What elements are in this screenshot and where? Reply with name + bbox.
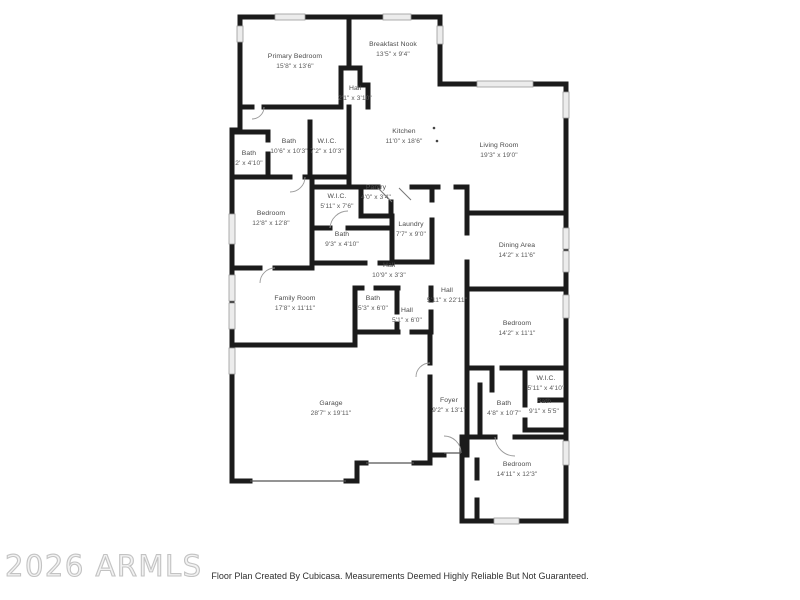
room-dims: 9'2" x 13'1"	[432, 406, 466, 416]
fixture-dots	[433, 127, 439, 143]
window	[477, 81, 533, 87]
room-name: Garage	[311, 399, 352, 409]
room-dims: 13'5" x 9'4"	[369, 50, 417, 60]
room-name: Breakfast Nook	[369, 40, 417, 50]
room-dims: 28'7" x 19'11"	[311, 409, 352, 419]
room-label-bath: Bath5'3" x 6'0"	[358, 294, 388, 314]
room-label-w-i-c-: W.I.C.5'11" x 7'6"	[320, 192, 353, 212]
room-label-kitchen: Kitchen11'0" x 18'6"	[386, 127, 423, 147]
room-dims: 5'11" x 4'10"	[528, 384, 565, 394]
room-dims: 19'3" x 19'0"	[480, 151, 519, 161]
room-dims: 7'7" x 9'0"	[396, 230, 426, 240]
room-name: Bath	[235, 149, 263, 159]
room-label-living-room: Living Room19'3" x 19'0"	[480, 141, 519, 161]
room-label-dining-area: Dining Area14'2" x 11'6"	[499, 241, 536, 261]
room-dims: 4'8" x 10'7"	[487, 409, 521, 419]
room-dims: 5'1" x 6'0"	[392, 316, 422, 326]
window	[229, 275, 235, 301]
footer-disclaimer: Floor Plan Created By Cubicasa. Measurem…	[0, 571, 800, 581]
room-name: Hall	[427, 286, 467, 296]
room-dims: 5'11" x 22'11"	[427, 296, 467, 306]
window	[563, 228, 569, 249]
room-label-foyer: Foyer9'2" x 13'1"	[432, 396, 466, 416]
room-name: Living Room	[480, 141, 519, 151]
room-dims: 4'0" x 3'4"	[361, 193, 391, 203]
room-name: W.I.C.	[310, 137, 344, 147]
room-name: Primary Bedroom	[268, 52, 322, 62]
window	[563, 441, 569, 465]
room-dims: 12'8" x 12'8"	[252, 219, 289, 229]
room-name: Kitchen	[386, 127, 423, 137]
room-name: Bath	[487, 399, 521, 409]
window	[275, 14, 305, 20]
room-label-bath: Bath9'3" x 4'10"	[325, 230, 359, 250]
window	[229, 214, 235, 244]
room-label-bedroom: Bedroom14'2" x 11'1"	[499, 319, 536, 339]
door-arcs	[252, 107, 515, 456]
room-label-bath: Bath4'8" x 10'7"	[487, 399, 521, 419]
room-label-hall: Hall2'1" x 3'10"	[338, 84, 372, 104]
room-dims: 9'3" x 4'10"	[325, 240, 359, 250]
room-dims: 11'0" x 18'6"	[386, 137, 423, 147]
room-dims: 10'6" x 10'3"	[270, 147, 307, 157]
window	[237, 26, 243, 42]
room-name: Bath	[270, 137, 307, 147]
room-label-family-room: Family Room17'8" x 11'11"	[274, 294, 315, 314]
room-dims: 9'1" x 5'5"	[529, 407, 559, 417]
window	[563, 295, 569, 318]
room-label-laundry: Laundry7'7" x 9'0"	[396, 220, 426, 240]
window	[563, 251, 569, 272]
room-label-bath: Bath9'1" x 5'5"	[529, 397, 559, 417]
room-name: Laundry	[396, 220, 426, 230]
room-name: Hall	[372, 261, 406, 271]
room-name: Bath	[325, 230, 359, 240]
room-label-w-i-c-: W.I.C.5'11" x 4'10"	[528, 374, 565, 394]
window	[437, 26, 443, 44]
room-name: Bath	[358, 294, 388, 304]
room-dims: 5'11" x 7'6"	[320, 202, 353, 212]
room-dims: 2'1" x 3'10"	[338, 94, 372, 104]
room-name: Bedroom	[497, 460, 538, 470]
room-label-hall: Hall5'11" x 22'11"	[427, 286, 467, 306]
window	[494, 518, 519, 524]
window	[383, 14, 411, 20]
window	[229, 348, 235, 374]
room-label-primary-bedroom: Primary Bedroom15'8" x 13'6"	[268, 52, 322, 72]
room-label-bath: Bath2' x 4'10"	[235, 149, 263, 169]
window	[563, 92, 569, 118]
room-label-bath: Bath10'6" x 10'3"	[270, 137, 307, 157]
room-label-breakfast-nook: Breakfast Nook13'5" x 9'4"	[369, 40, 417, 60]
room-name: W.I.C.	[320, 192, 353, 202]
room-dims: 14'2" x 11'6"	[499, 251, 536, 261]
room-dims: 5'3" x 6'0"	[358, 304, 388, 314]
room-name: Hall	[338, 84, 372, 94]
room-name: Dining Area	[499, 241, 536, 251]
room-dims: 2' x 4'10"	[235, 159, 263, 169]
room-label-bedroom: Bedroom14'11" x 12'3"	[497, 460, 538, 480]
room-label-hall: Hall10'9" x 3'3"	[372, 261, 406, 281]
floor-plan-page: Primary Bedroom15'8" x 13'6"Breakfast No…	[0, 0, 800, 600]
room-name: Family Room	[274, 294, 315, 304]
room-label-w-i-c-: W.I.C.7'2" x 10'3"	[310, 137, 344, 157]
room-label-garage: Garage28'7" x 19'11"	[311, 399, 352, 419]
floor-plan-drawing	[0, 0, 800, 600]
room-dims: 14'2" x 11'1"	[499, 329, 536, 339]
room-label-bedroom: Bedroom12'8" x 12'8"	[252, 209, 289, 229]
room-name: Bath	[529, 397, 559, 407]
room-dims: 7'2" x 10'3"	[310, 147, 344, 157]
room-dims: 17'8" x 11'11"	[274, 304, 315, 314]
room-name: Foyer	[432, 396, 466, 406]
room-label-pantry: Pantry4'0" x 3'4"	[361, 183, 391, 203]
room-label-hall: Hall5'1" x 6'0"	[392, 306, 422, 326]
room-name: Bedroom	[499, 319, 536, 329]
room-name: Pantry	[361, 183, 391, 193]
room-name: W.I.C.	[528, 374, 565, 384]
room-name: Hall	[392, 306, 422, 316]
room-dims: 10'9" x 3'3"	[372, 271, 406, 281]
room-name: Bedroom	[252, 209, 289, 219]
window	[229, 303, 235, 329]
room-dims: 14'11" x 12'3"	[497, 470, 538, 480]
room-dims: 15'8" x 13'6"	[268, 62, 322, 72]
